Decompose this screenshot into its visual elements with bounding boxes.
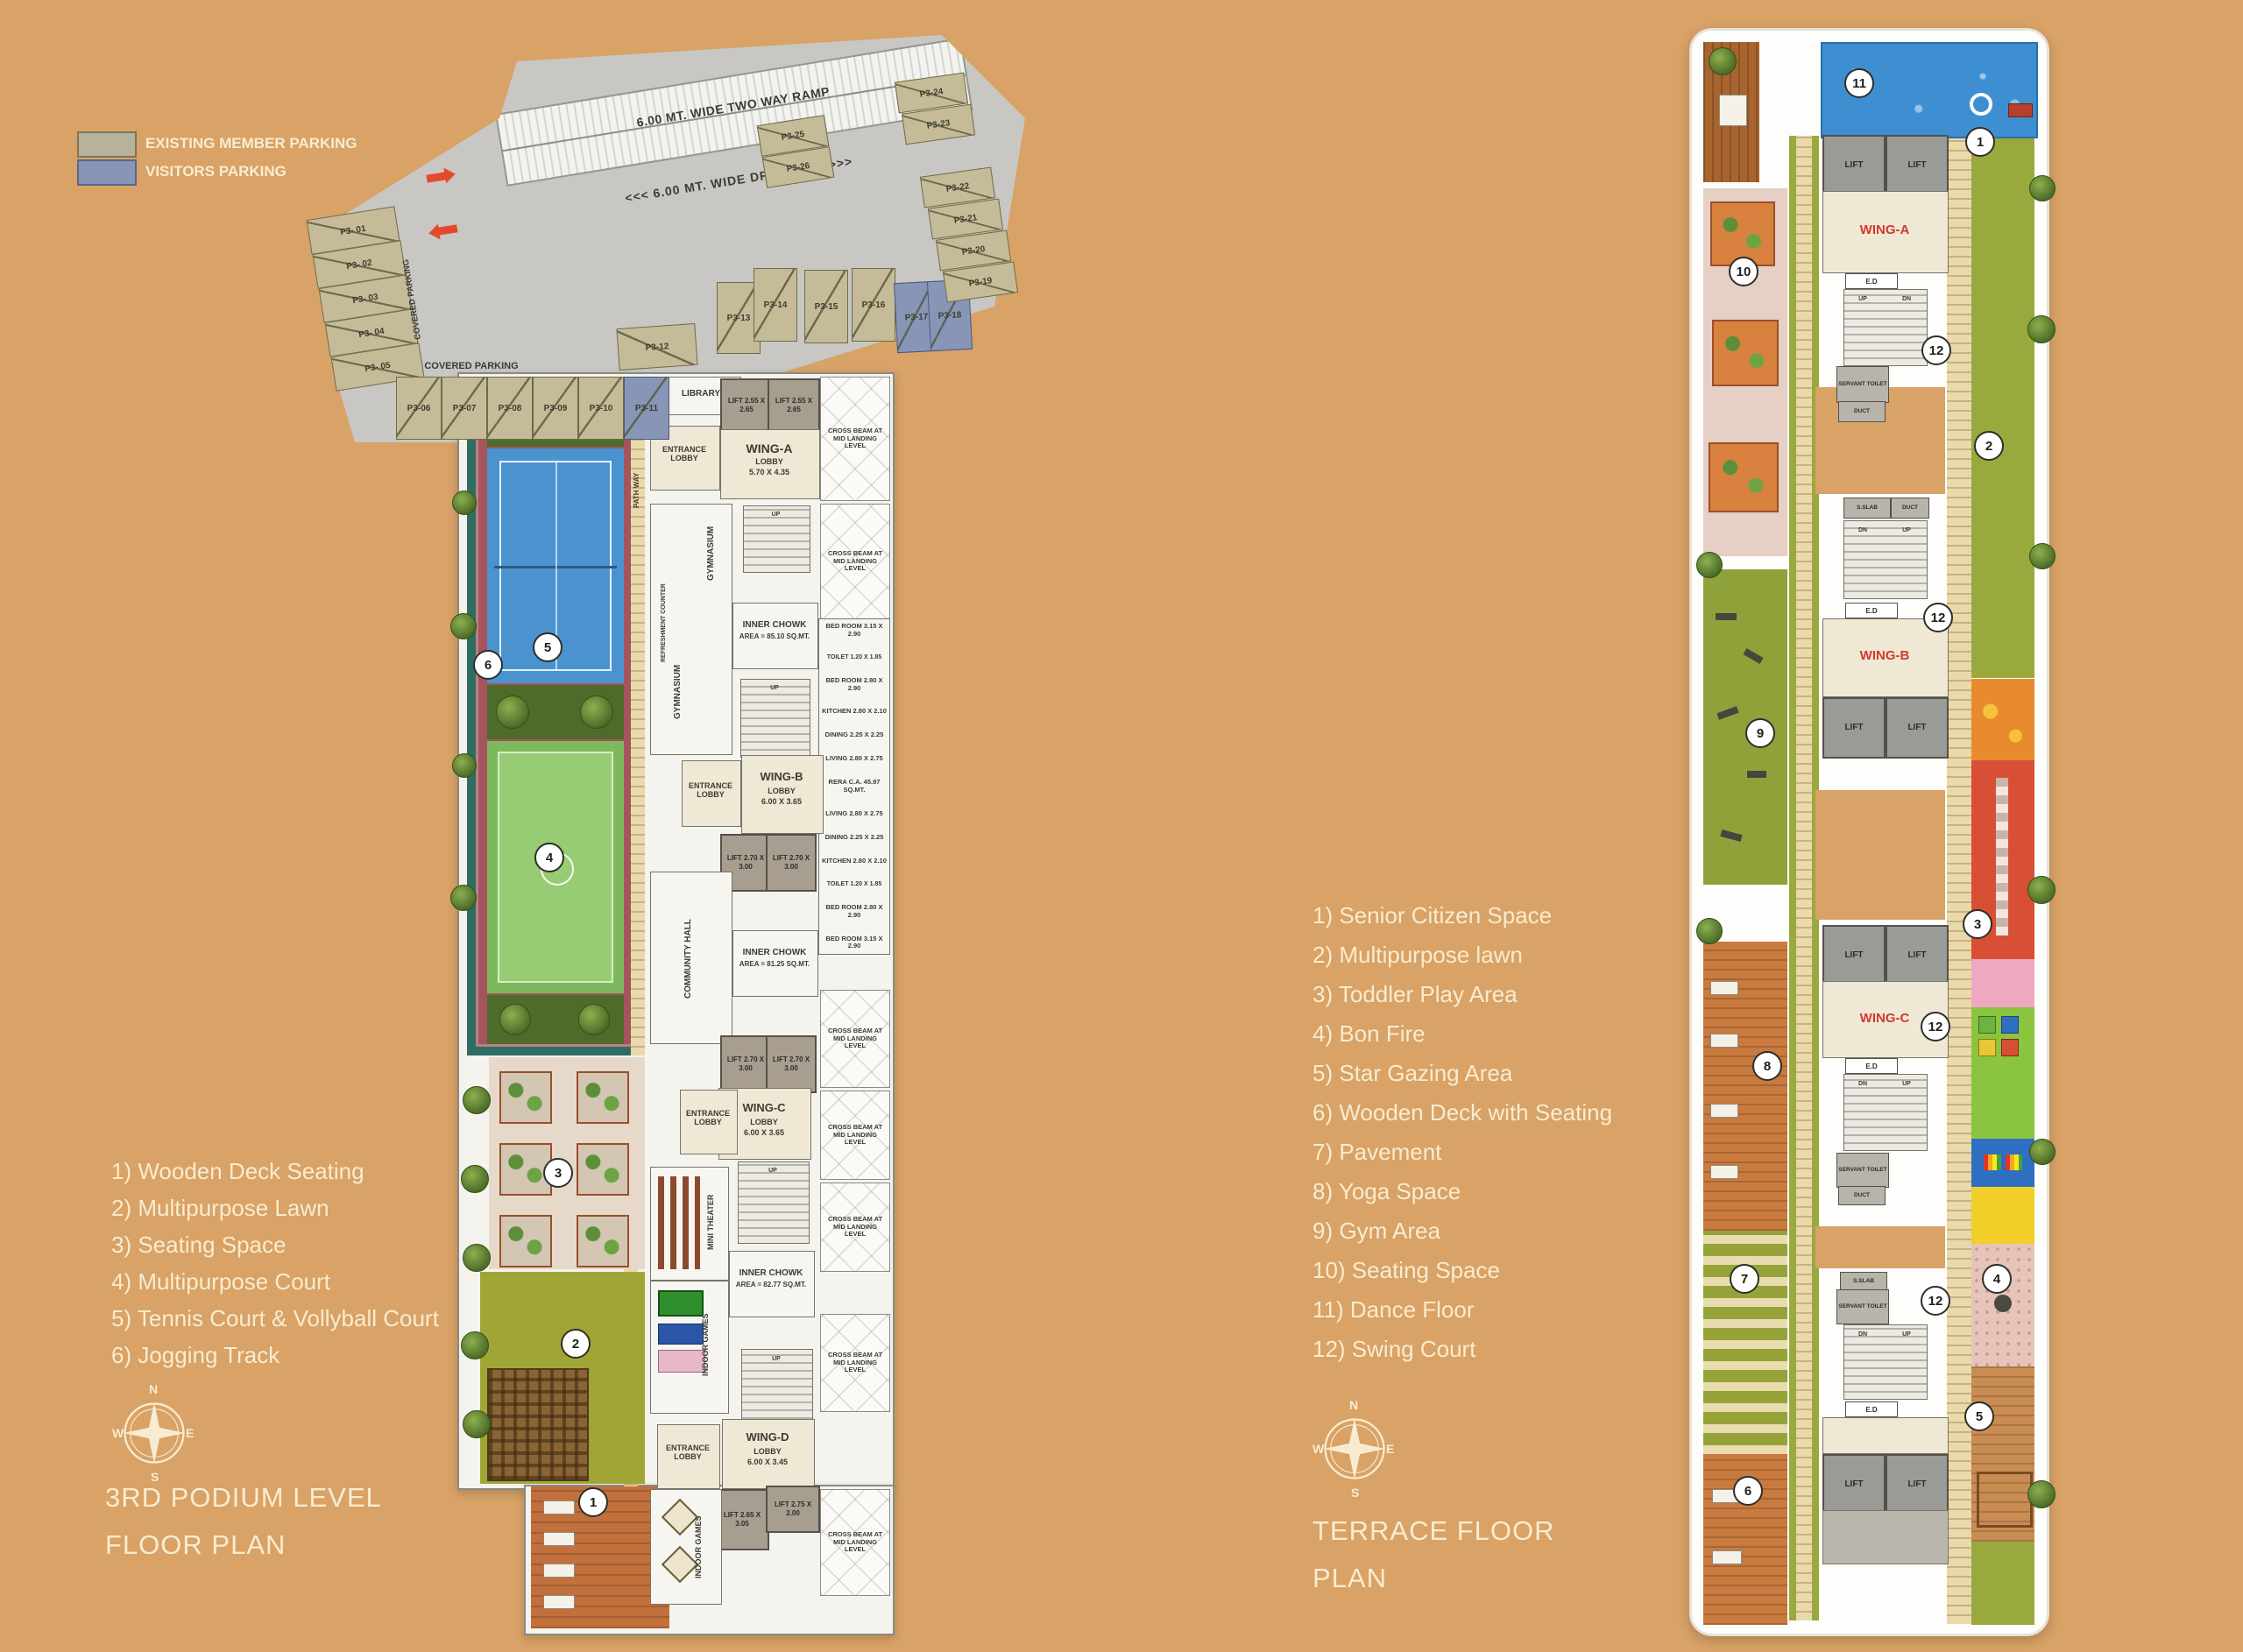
lift-b2: LIFT 2.70 X 3.00: [766, 834, 817, 892]
legend-item: 11) Dance Floor: [1313, 1296, 1612, 1324]
cross-beam-note: CROSS BEAM AT MID LANDING LEVEL: [826, 1531, 884, 1554]
marker-jogging-track: 6: [473, 650, 503, 680]
marker-seating-space: 3: [543, 1158, 573, 1188]
gym-equipment-icon: [1716, 706, 1738, 720]
legend-item: 9) Gym Area: [1313, 1218, 1612, 1245]
unit-label: DINING 2.25 X 2.25: [821, 834, 888, 842]
pool-bench: [2008, 103, 2033, 117]
compass-north: N: [149, 1382, 158, 1396]
marker-swing-court: 12: [1921, 1012, 1950, 1041]
stair-shaft: CROSS BEAM AT MID LANDING LEVEL: [820, 1091, 890, 1180]
marker-yoga-space: 8: [1752, 1051, 1782, 1081]
unit-label: DINING 2.25 X 2.25: [821, 731, 888, 739]
terrace-lift: LIFT: [1886, 1454, 1949, 1515]
stair-shaft: CROSS BEAM AT MID LANDING LEVEL: [820, 504, 890, 619]
wing-b-sub: LOBBY: [741, 787, 822, 795]
member-parking-label: EXISTING MEMBER PARKING: [145, 135, 357, 152]
toddler-zone-pink: [1971, 959, 2034, 1007]
duct: DUCT: [1838, 1186, 1886, 1205]
legend-item: 2) Multipurpose lawn: [1313, 942, 1612, 969]
deck-lounger: [543, 1595, 575, 1609]
cross-beam-note: CROSS BEAM AT MID LANDING LEVEL: [826, 1352, 884, 1374]
inner-chowk-1-line2: AREA = 85.10 SQ.MT.: [732, 632, 817, 640]
legend-item: 8) Yoga Space: [1313, 1178, 1612, 1205]
marker-dance-floor: 11: [1844, 68, 1874, 98]
legend-item: 12) Swing Court: [1313, 1336, 1612, 1363]
tree-icon: [499, 1004, 531, 1035]
stairs-c-up: UP: [738, 1168, 808, 1175]
brochure-page: { "colors": { "background": "#d9a266", "…: [0, 0, 2243, 1652]
terrace-lift: LIFT: [1822, 1454, 1886, 1515]
visitors-parking-swatch: [77, 159, 137, 186]
palm-tree-icon: [463, 1244, 491, 1272]
yoga-mat: [1710, 1165, 1738, 1179]
planter-box: [577, 1143, 629, 1196]
toddler-zone-blue: [1971, 1139, 2034, 1187]
terrace-entrance-canopy: [1822, 1510, 1949, 1564]
marker-multipurpose-court: 4: [534, 843, 564, 872]
entrance-lobby-c-label: ENTRANCE LOBBY: [682, 1109, 734, 1127]
stair-shaft: CROSS BEAM AT MID LANDING LEVEL: [820, 1314, 890, 1412]
inner-chowk-3-line2: AREA = 82.77 SQ.MT.: [729, 1281, 813, 1288]
deck-lounger: [543, 1500, 575, 1514]
entrance-lobby-d-label: ENTRANCE LOBBY: [659, 1444, 717, 1462]
electrical-duct: E.D: [1845, 603, 1898, 618]
gymnasium-label: GYMNASIUM: [673, 648, 683, 736]
palm-tree-icon: [2027, 1480, 2055, 1508]
yoga-mat: [1710, 1034, 1738, 1048]
deck-lounger: [1712, 1550, 1742, 1564]
legend-item: 5) Star Gazing Area: [1313, 1060, 1612, 1087]
star-gazing-deck: [1971, 1366, 2034, 1542]
servant-toilet: SERVANT TOILET: [1836, 366, 1889, 403]
marker-multipurpose-lawn: 2: [1974, 431, 2004, 461]
legend-item: 7) Pavement: [1313, 1139, 1612, 1166]
terrace-lift: LIFT: [1886, 135, 1949, 196]
indoor-games-room-upper: [650, 1281, 729, 1414]
indoor-games-label: INDOOR GAMES: [694, 1503, 703, 1591]
terrace-seating-pavement: [1703, 188, 1787, 556]
inner-chowk-1-line1: INNER CHOWK: [732, 620, 817, 631]
lift-a1: LIFT 2.55 X 2.65: [720, 378, 773, 433]
parking-stall: P3-08: [487, 377, 533, 440]
unit-label: LIVING 2.80 X 2.75: [821, 810, 888, 818]
marker-wooden-deck: 1: [578, 1487, 608, 1517]
s-slab-duct: S.SLAB: [1843, 498, 1891, 519]
marker-senior-citizen: 1: [1965, 127, 1995, 157]
unit-label: TOILET 1.20 X 1.85: [821, 654, 888, 661]
entrance-lobby-a-label: ENTRANCE LOBBY: [652, 445, 717, 463]
legend-item: 2) Multipurpose Lawn: [111, 1195, 439, 1222]
marker-gym-area: 9: [1745, 718, 1775, 748]
unit-label: KITCHEN 2.80 X 2.10: [821, 708, 888, 716]
stairs-d-up: UP: [741, 1356, 811, 1363]
toddler-zone-ludo: [1971, 1007, 2034, 1086]
ludo-tile: [2001, 1016, 2019, 1034]
terrace-lift: LIFT: [1822, 697, 1886, 759]
s-slab-duct: S.SLAB: [1840, 1272, 1887, 1291]
palm-tree-icon: [2029, 543, 2055, 569]
stairs-b-up: UP: [740, 685, 809, 692]
visitors-parking-label: VISITORS PARKING: [145, 163, 287, 180]
palm-tree-icon: [463, 1410, 491, 1438]
path-way-label: PATH WAY: [633, 455, 640, 526]
palm-tree-icon: [463, 1086, 491, 1114]
legend-item: 4) Multipurpose Court: [111, 1268, 439, 1295]
stair-shaft: CROSS BEAM AT MID LANDING LEVEL: [820, 1183, 890, 1272]
marker-wooden-deck-seating: 6: [1733, 1476, 1763, 1506]
indoor-games-label: INDOOR GAMES: [701, 1296, 710, 1393]
covered-parking-row-label: COVERED PARKING: [399, 361, 544, 372]
terrace-lift: LIFT: [1822, 135, 1886, 196]
duct: DUCT: [1838, 401, 1886, 422]
stairs-dn-label: DN: [1889, 296, 1924, 303]
unit-label: BED ROOM 2.80 X 2.90: [821, 904, 888, 919]
legend-item: 5) Tennis Court & Vollyball Court: [111, 1305, 439, 1332]
terrace-gym-area: [1703, 569, 1787, 885]
lift-a2: LIFT 2.55 X 2.65: [768, 378, 820, 433]
palm-tree-icon: [461, 1331, 489, 1359]
yoga-mat: [1710, 1104, 1738, 1118]
marker-tennis-court: 5: [533, 632, 563, 662]
gym-equipment-icon: [1747, 771, 1766, 778]
mini-theater-label: MINI THEATER: [706, 1178, 715, 1266]
legend-item: 1) Wooden Deck Seating: [111, 1158, 439, 1185]
parking-stall: P3-06: [396, 377, 442, 440]
lift-d1: LIFT 2.65 X 3.05: [715, 1489, 769, 1550]
lift-c1: LIFT 2.70 X 3.00: [720, 1035, 771, 1093]
legend-item: 3) Toddler Play Area: [1313, 981, 1612, 1008]
unit-label: BED ROOM 3.15 X 2.90: [821, 623, 888, 638]
terrace-lift: LIFT: [1822, 925, 1886, 986]
palm-tree-icon: [452, 491, 477, 515]
servant-toilet: SERVANT TOILET: [1836, 1289, 1889, 1324]
tree-icon: [578, 1004, 610, 1035]
stairs-up-label: UP: [1889, 1081, 1924, 1088]
palm-tree-icon: [2029, 175, 2055, 201]
palm-tree-icon: [450, 613, 477, 639]
electrical-duct: E.D: [1845, 273, 1898, 289]
servant-toilet: SERVANT TOILET: [1836, 1153, 1889, 1188]
tree-icon: [496, 695, 529, 729]
games-table-blue: [658, 1324, 704, 1345]
podium-legend: 1) Wooden Deck Seating 2) Multipurpose L…: [111, 1158, 439, 1379]
planter-box: [499, 1071, 552, 1124]
gym-equipment-icon: [1720, 830, 1742, 842]
compass-rose: N W E S: [1313, 1398, 1397, 1500]
stairs-up-label: UP: [1845, 296, 1880, 303]
compass-star-icon: [121, 1400, 188, 1466]
entrance-lobby-b-label: ENTRANCE LOBBY: [683, 781, 738, 800]
lift-d2: LIFT 2.75 X 2.00: [766, 1486, 820, 1533]
unit-label: BED ROOM 3.15 X 2.90: [821, 935, 888, 950]
stairs-dn-label: DN: [1845, 1081, 1880, 1088]
stair-shaft: CROSS BEAM AT MID LANDING LEVEL: [820, 377, 890, 501]
marker-swing-court: 12: [1921, 335, 1951, 365]
compass-south: S: [1351, 1486, 1359, 1500]
bon-fire-pit-icon: [1994, 1295, 2012, 1312]
toddler-zone-green: [1971, 1086, 2034, 1139]
terrace-wing-b-label: WING-B: [1822, 648, 1947, 663]
planter-box: [577, 1071, 629, 1124]
unit-label: TOILET 1.20 X 1.85: [821, 881, 888, 888]
terrace-brick-path-left: [1796, 136, 1812, 1620]
wing-a-name: WING-A: [720, 441, 818, 455]
star-gazing-pergola: [1977, 1472, 2033, 1528]
unit-label: BED ROOM 2.80 X 2.90: [821, 677, 888, 692]
legend-item: 4) Bon Fire: [1313, 1020, 1612, 1048]
stairs-dn-label: DN: [1845, 527, 1880, 534]
rainbow-ladder-icon: [1984, 1154, 2022, 1170]
tree-icon: [580, 695, 613, 729]
stairs-a-up: UP: [743, 512, 809, 519]
wing-a-sub: LOBBY: [720, 457, 818, 466]
pool-table: [658, 1290, 704, 1317]
wing-d-name: WING-D: [722, 1431, 813, 1444]
palm-tree-icon: [1696, 552, 1723, 578]
inner-chowk-2-line2: AREA = 81.25 SQ.MT.: [732, 960, 817, 968]
theater-seats: [658, 1176, 700, 1269]
parking-stall: P3-09: [533, 377, 578, 440]
cross-beam-note: CROSS BEAM AT MID LANDING LEVEL: [826, 550, 884, 573]
marker-toddler-play: 3: [1963, 909, 1992, 939]
terrace-wing-a-label: WING-A: [1822, 222, 1947, 237]
unit-label: LIVING 2.80 X 2.75: [821, 755, 888, 763]
wing-c-dim: 6.00 X 3.65: [718, 1128, 810, 1137]
unit-label: KITCHEN 2.80 X 2.10: [821, 858, 888, 865]
parking-stall: P3-14: [754, 268, 797, 342]
terrace-lift: LIFT: [1886, 697, 1949, 759]
terrace-legend: 1) Senior Citizen Space 2) Multipurpose …: [1313, 902, 1612, 1375]
stair-shaft: CROSS BEAM AT MID LANDING LEVEL: [820, 990, 890, 1088]
planter-box: [577, 1215, 629, 1267]
gym-equipment-icon: [1743, 648, 1763, 664]
terrace-lift: LIFT: [1886, 925, 1949, 986]
legend-item: 1) Senior Citizen Space: [1313, 902, 1612, 929]
podium-title: 3RD PODIUM LEVEL FLOOR PLAN: [105, 1482, 382, 1561]
indoor-games-room-lower: [650, 1489, 722, 1605]
stairs-dn-label: DN: [1845, 1331, 1880, 1338]
multipurpose-lawn: [480, 1272, 645, 1484]
wing-a-dim: 5.70 X 4.35: [720, 468, 818, 477]
unit-label: RERA C.A. 45.97 SQ.MT.: [821, 779, 888, 794]
deck-seat: [1719, 95, 1747, 126]
palm-tree-icon: [2027, 315, 2055, 343]
parking-stall: P3-16: [852, 268, 895, 342]
marker-multipurpose-lawn: 2: [561, 1329, 591, 1359]
wing-d-dim: 6.00 X 3.45: [722, 1458, 813, 1466]
electrical-duct: E.D: [1845, 1058, 1898, 1074]
games-table-diamond: [662, 1499, 698, 1536]
electrical-duct: E.D: [1845, 1401, 1898, 1417]
legend-item: 6) Jogging Track: [111, 1342, 439, 1369]
wing-b-name: WING-B: [741, 771, 822, 784]
marker-swing-court: 12: [1921, 1286, 1950, 1316]
stairs-up-label: UP: [1889, 1331, 1924, 1338]
terrace-void: [1815, 1226, 1945, 1268]
terrace-brick-path-right: [1947, 135, 1971, 1624]
terrace-title-line2: PLAN: [1313, 1563, 1555, 1594]
gymnasium-label: GYMNASIUM: [706, 510, 717, 597]
cross-beam-note: CROSS BEAM AT MID LANDING LEVEL: [826, 1124, 884, 1147]
terrace-title-line1: TERRACE FLOOR: [1313, 1515, 1555, 1547]
inner-chowk-2-line1: INNER CHOWK: [732, 948, 817, 958]
cross-beam-note: CROSS BEAM AT MID LANDING LEVEL: [826, 1027, 884, 1050]
stair-shaft: CROSS BEAM AT MID LANDING LEVEL: [820, 1489, 890, 1596]
parking-stall: P3-12: [616, 323, 697, 371]
parking-stall: P3-15: [804, 270, 848, 343]
wing-b-dim: 6.00 X 3.65: [741, 797, 822, 806]
lift-c2: LIFT 2.70 X 3.00: [766, 1035, 817, 1093]
palm-tree-icon: [2027, 876, 2055, 904]
terrace-bottom-lobby: [1822, 1417, 1949, 1454]
palm-tree-icon: [2029, 1139, 2055, 1165]
toddler-zone-orange: [1971, 679, 2034, 760]
compass-star-icon: [1321, 1415, 1388, 1482]
legend-item: 10) Seating Space: [1313, 1257, 1612, 1284]
play-slide-icon: [1996, 778, 2008, 935]
terrace-title: TERRACE FLOOR PLAN: [1313, 1515, 1555, 1594]
palm-tree-icon: [450, 885, 477, 911]
deck-lounger: [543, 1564, 575, 1578]
inner-chowk-3-line1: INNER CHOWK: [729, 1268, 813, 1279]
palm-tree-icon: [452, 753, 477, 778]
compass-rose: N W E S: [112, 1382, 196, 1484]
ludo-tile: [1978, 1039, 1996, 1056]
compass-north: N: [1349, 1398, 1358, 1412]
marker-star-gazing: 5: [1964, 1401, 1994, 1431]
podium-title-line2: FLOOR PLAN: [105, 1529, 382, 1561]
podium-title-line1: 3RD PODIUM LEVEL: [105, 1482, 382, 1514]
terrace-void: [1815, 790, 1945, 920]
planter-box: [499, 1215, 552, 1267]
parking-stall: P3-07: [442, 377, 487, 440]
marker-swing-court: 12: [1923, 603, 1953, 632]
terrace-top-deck: [1703, 42, 1759, 182]
cross-beam-note: CROSS BEAM AT MID LANDING LEVEL: [826, 1216, 884, 1239]
ludo-tile: [2001, 1039, 2019, 1056]
wing-d-sub: LOBBY: [722, 1447, 813, 1456]
legend-item: 3) Seating Space: [111, 1232, 439, 1259]
refreshment-counter-label: REFRESHMENT COUNTER: [661, 557, 668, 688]
community-hall-label: COMMUNITY HALL: [683, 893, 694, 1025]
legend-item: 6) Wooden Deck with Seating: [1313, 1099, 1612, 1126]
palm-tree-icon: [461, 1165, 489, 1193]
member-parking-swatch: [77, 131, 137, 158]
terrace-lawn-bottom-right: [1971, 1542, 2034, 1625]
cross-beam-note: CROSS BEAM AT MID LANDING LEVEL: [826, 427, 884, 450]
marker-seating-space: 10: [1729, 257, 1758, 286]
bon-fire-paving: [1971, 1244, 2034, 1366]
ludo-tile: [1978, 1016, 1996, 1034]
swim-ring-icon: [1970, 93, 1992, 116]
deck-lounger: [543, 1532, 575, 1546]
parking-stall-visitor: P3-11: [624, 377, 669, 440]
unit-wing: BED ROOM 3.15 X 2.90 TOILET 1.20 X 1.85 …: [818, 618, 890, 955]
parking-stall: P3-10: [578, 377, 624, 440]
palm-tree-icon: [1696, 918, 1723, 944]
games-table-diamond: [662, 1546, 698, 1583]
gym-equipment-icon: [1716, 613, 1737, 620]
terrace-yoga-deck: [1703, 942, 1787, 1231]
planter-box: [1709, 442, 1779, 512]
yoga-mat: [1710, 981, 1738, 995]
planter-green-icon: [1709, 47, 1737, 75]
marker-pavement: 7: [1730, 1264, 1759, 1294]
mini-theater-room: [650, 1167, 729, 1281]
library-label: LIBRARY: [662, 389, 739, 399]
pergola: [487, 1368, 589, 1481]
toddler-zone-yellow: [1971, 1187, 2034, 1244]
marker-bon-fire: 4: [1982, 1264, 2012, 1294]
ramp-arrow-up-icon: [426, 172, 446, 182]
duct: DUCT: [1891, 498, 1929, 519]
planter-box: [1712, 320, 1779, 386]
ramp-label: 6.00 MT. WIDE TWO WAY RAMP: [500, 62, 966, 152]
stairs-up-label: UP: [1889, 527, 1924, 534]
games-table-pink: [658, 1350, 705, 1373]
ramp-arrow-down-icon: [437, 224, 457, 235]
